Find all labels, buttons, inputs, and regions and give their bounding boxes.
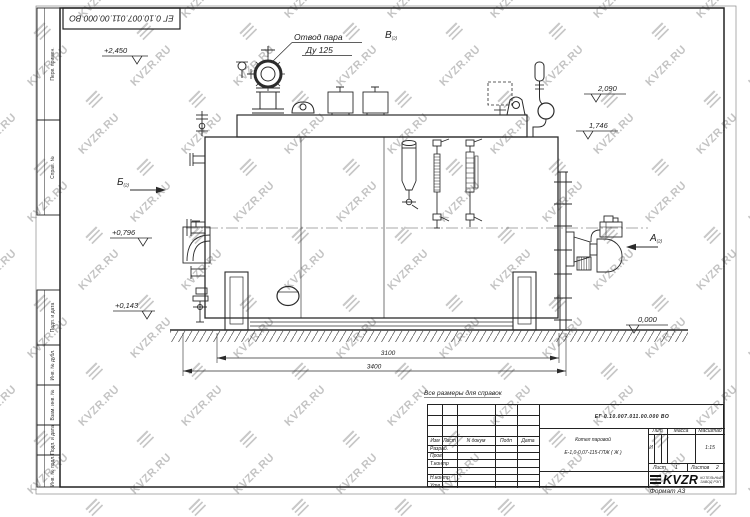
col-list: Лист: [443, 438, 456, 444]
burner-assembly: [566, 216, 622, 272]
sheets-label: Листов: [691, 465, 709, 471]
col-podp: Подп: [500, 438, 512, 444]
reference-note: Все размеры для справок: [424, 389, 503, 397]
manhole: [277, 287, 299, 306]
lit-value: И: [649, 445, 653, 451]
front-fittings: [183, 111, 210, 322]
massa-header: Масса: [674, 428, 689, 434]
ground-line: [170, 330, 688, 342]
product-name: Котел паровой: [575, 437, 611, 443]
dimension-3100: 3100: [381, 350, 396, 357]
product-designation: Е-1,0-0,07-115-ГЛЖ ( Ж ): [564, 450, 621, 456]
margin-label-podp2: Подп. и дата: [50, 425, 56, 455]
kvzr-logo: KVZR КОТЕЛЬНЫЙ ЗАВОД РЭП: [650, 472, 724, 487]
elevation-0796: +0,796: [112, 228, 136, 237]
row-tkontr: Т.контр: [430, 461, 449, 467]
elevation-marks: [102, 56, 668, 333]
view-label-a: А(2): [649, 233, 663, 244]
row-nkontr: Н.контр: [430, 475, 450, 481]
margin-label-sprav: Справ. №: [50, 156, 56, 179]
water-level-gauge-1: [433, 139, 449, 228]
watermark-bars-icon: [85, 498, 103, 516]
scale-value: 1:15: [705, 445, 715, 451]
watermark-bars-icon: [497, 498, 515, 516]
water-level-gauge-2: [466, 139, 482, 227]
rear-flange-plate: [554, 172, 572, 330]
sheet-label: Лист: [653, 465, 666, 471]
steam-outlet-dn-label: Ду 125: [305, 45, 333, 55]
manometer-with-siphon: [533, 62, 554, 137]
view-label-v: В(2): [385, 30, 398, 41]
lit-header: Лит: [652, 428, 662, 434]
col-data: Дата: [521, 438, 534, 444]
watermark-bars-icon: [703, 498, 721, 516]
margin-label-inv-dubl: Инв. № дубл.: [50, 350, 56, 381]
view-sub-b: (2): [124, 183, 130, 188]
view-label-b: Б(2): [117, 177, 130, 188]
margin-label-vzam: Взам. инв. №: [50, 390, 56, 421]
frame-margin-labels: Перв. примен. Справ. № Подп. и дата Инв.…: [50, 47, 56, 486]
format-label: Формат А3: [620, 488, 715, 495]
watermark-bars-icon: [291, 498, 309, 516]
mirrored-doc-number: ЕГ 0.10.007.011.00.000 ВО: [69, 14, 174, 24]
scale-header: Масштаб: [698, 428, 721, 434]
doc-number: ЕГ 0.10.007.011.00.000 ВО: [595, 414, 670, 420]
col-izm: Изм: [430, 438, 439, 444]
elevation-0143: +0,143: [115, 301, 139, 310]
separator-cylinder: [402, 141, 418, 210]
kvzr-logo-word: KVZR: [663, 473, 698, 487]
top-left-mirrored-stamp: ЕГ 0.10.007.011.00.000 ВО: [63, 8, 180, 29]
elevation-1746: 1,746: [589, 121, 609, 130]
sheet-value: 1: [675, 465, 678, 471]
elevation-0000: 0,000: [638, 315, 658, 324]
support-legs: [225, 272, 536, 330]
sheets-value: 2: [716, 465, 719, 471]
dimension-3400: 3400: [367, 364, 382, 371]
boiler-shell: [186, 115, 648, 326]
elevation-2090: 2,090: [597, 84, 618, 93]
view-sub-v: (2): [392, 36, 398, 41]
margin-label-perv: Перв. примен.: [50, 47, 56, 80]
watermark-bars-icon: [600, 498, 618, 516]
view-sub-a: (2): [657, 239, 663, 244]
title-block: ЕГ 0.10.007.011.00.000 ВО Изм Лист N док…: [427, 404, 724, 487]
row-prov: Пров.: [430, 453, 443, 459]
elevation-2450: +2,450: [104, 46, 128, 55]
lifting-eye-front: [292, 102, 314, 113]
kvzr-logo-bars-icon: [650, 475, 661, 485]
row-razrab: Разраб.: [430, 446, 448, 452]
safety-valve-hoods: [328, 87, 388, 116]
col-ndoc: N докум: [467, 438, 486, 444]
margin-label-podp1: Подп. и дата: [50, 303, 56, 333]
kvzr-logo-sub-line2: ЗАВОД РЭП: [700, 480, 721, 484]
row-utv: Утв.: [430, 483, 441, 489]
margin-label-inv-podl: Инв. № подл.: [50, 455, 56, 486]
kvzr-logo-subtitle: КОТЕЛЬНЫЙ ЗАВОД РЭП: [700, 476, 723, 484]
lifting-lug-rear: [507, 97, 525, 115]
watermark-bars-icon: [394, 498, 412, 516]
steam-outlet-label: Отвод пара: [294, 32, 343, 42]
watermark-bars-icon: [188, 498, 206, 516]
